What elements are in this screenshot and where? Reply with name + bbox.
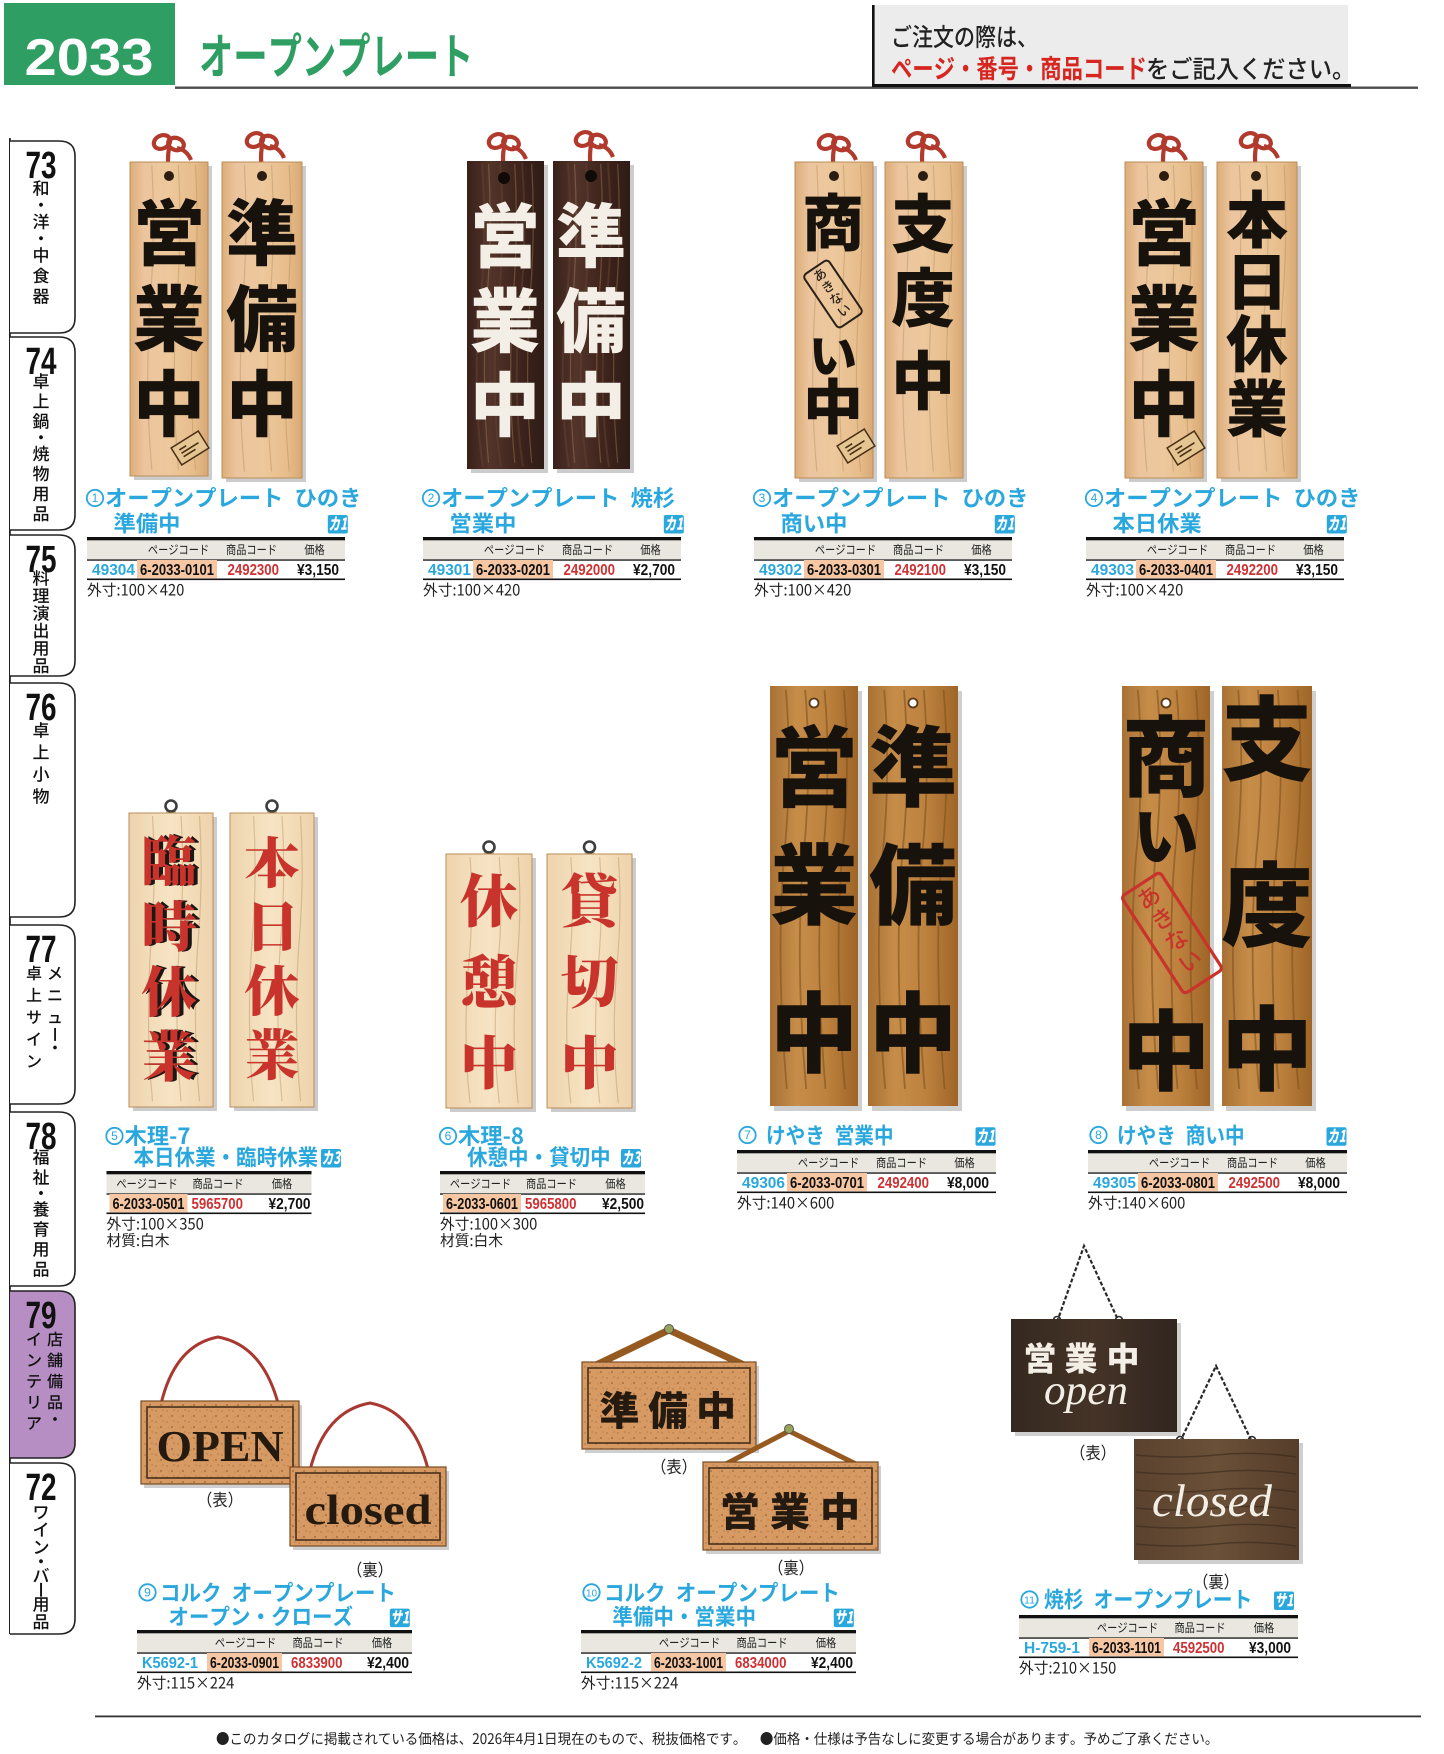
svg-text:5965700: 5965700 (192, 1196, 244, 1213)
svg-text:¥3,000: ¥3,000 (1249, 1640, 1291, 1657)
svg-text:OPEN: OPEN (157, 1422, 284, 1471)
svg-text:closed: closed (305, 1488, 432, 1534)
svg-text:6-2033-0501: 6-2033-0501 (113, 1196, 185, 1213)
svg-text:¥2,700: ¥2,700 (633, 562, 675, 579)
svg-text:10: 10 (586, 1589, 597, 1600)
svg-text:73: 73 (26, 145, 57, 187)
svg-text:6834000: 6834000 (735, 1655, 787, 1672)
svg-text:6-2033-0401: 6-2033-0401 (1139, 562, 1213, 579)
svg-text:¥2,400: ¥2,400 (367, 1655, 409, 1672)
svg-text:6-2033-0801: 6-2033-0801 (1141, 1175, 1215, 1192)
svg-text:7: 7 (744, 1128, 751, 1142)
svg-text:open: open (1044, 1368, 1128, 1414)
svg-text:1: 1 (92, 491, 99, 505)
svg-text:¥3,150: ¥3,150 (964, 562, 1006, 579)
svg-text:5: 5 (111, 1129, 118, 1143)
svg-text:6-2033-1101: 6-2033-1101 (1092, 1640, 1161, 1657)
svg-text:77: 77 (26, 929, 57, 971)
svg-text:K5692-2: K5692-2 (586, 1655, 642, 1672)
svg-text:49305: 49305 (1093, 1175, 1136, 1192)
svg-text:2492400: 2492400 (878, 1175, 930, 1192)
svg-text:75: 75 (26, 539, 57, 581)
svg-text:2492300: 2492300 (228, 562, 280, 579)
svg-text:49306: 49306 (742, 1175, 785, 1192)
svg-text:49303: 49303 (1091, 562, 1134, 579)
svg-text:¥8,000: ¥8,000 (1298, 1175, 1340, 1192)
svg-text:H-759-1: H-759-1 (1024, 1640, 1080, 1657)
svg-text:3: 3 (759, 491, 766, 505)
svg-text:6-2033-0901: 6-2033-0901 (210, 1655, 279, 1672)
svg-text:¥2,400: ¥2,400 (811, 1655, 853, 1672)
svg-text:6-2033-0301: 6-2033-0301 (807, 562, 881, 579)
svg-text:¥8,000: ¥8,000 (947, 1175, 989, 1192)
svg-text:¥3,150: ¥3,150 (297, 562, 339, 579)
svg-text:2033: 2033 (25, 29, 154, 87)
svg-text:¥2,700: ¥2,700 (269, 1196, 311, 1213)
svg-text:6833900: 6833900 (291, 1655, 343, 1672)
svg-text:K5692-1: K5692-1 (142, 1655, 198, 1672)
svg-text:2492200: 2492200 (1227, 562, 1279, 579)
svg-text:4: 4 (1091, 491, 1098, 505)
svg-text:79: 79 (26, 1295, 57, 1337)
svg-text:¥2,500: ¥2,500 (602, 1196, 644, 1213)
svg-text:2492500: 2492500 (1229, 1175, 1281, 1192)
svg-text:2: 2 (428, 491, 435, 505)
svg-text:5965800: 5965800 (525, 1196, 577, 1213)
svg-text:2492000: 2492000 (564, 562, 616, 579)
svg-text:49304: 49304 (92, 562, 135, 579)
svg-text:78: 78 (26, 1116, 57, 1158)
svg-text:6-2033-0601: 6-2033-0601 (446, 1196, 518, 1213)
svg-text:11: 11 (1024, 1596, 1035, 1607)
svg-text:6-2033-0701: 6-2033-0701 (790, 1175, 864, 1192)
svg-text:8: 8 (1095, 1128, 1102, 1142)
svg-text:72: 72 (26, 1467, 57, 1509)
svg-text:2492100: 2492100 (895, 562, 947, 579)
svg-text:closed: closed (1152, 1475, 1273, 1526)
svg-text:49302: 49302 (759, 562, 802, 579)
svg-text:6-2033-0201: 6-2033-0201 (476, 562, 550, 579)
svg-text:6-2033-1001: 6-2033-1001 (654, 1655, 723, 1672)
svg-text:4592500: 4592500 (1173, 1640, 1225, 1657)
svg-text:6: 6 (445, 1129, 452, 1143)
svg-text:¥3,150: ¥3,150 (1296, 562, 1338, 579)
svg-text:49301: 49301 (428, 562, 471, 579)
svg-text:6-2033-0101: 6-2033-0101 (140, 562, 214, 579)
svg-text:9: 9 (144, 1586, 151, 1600)
